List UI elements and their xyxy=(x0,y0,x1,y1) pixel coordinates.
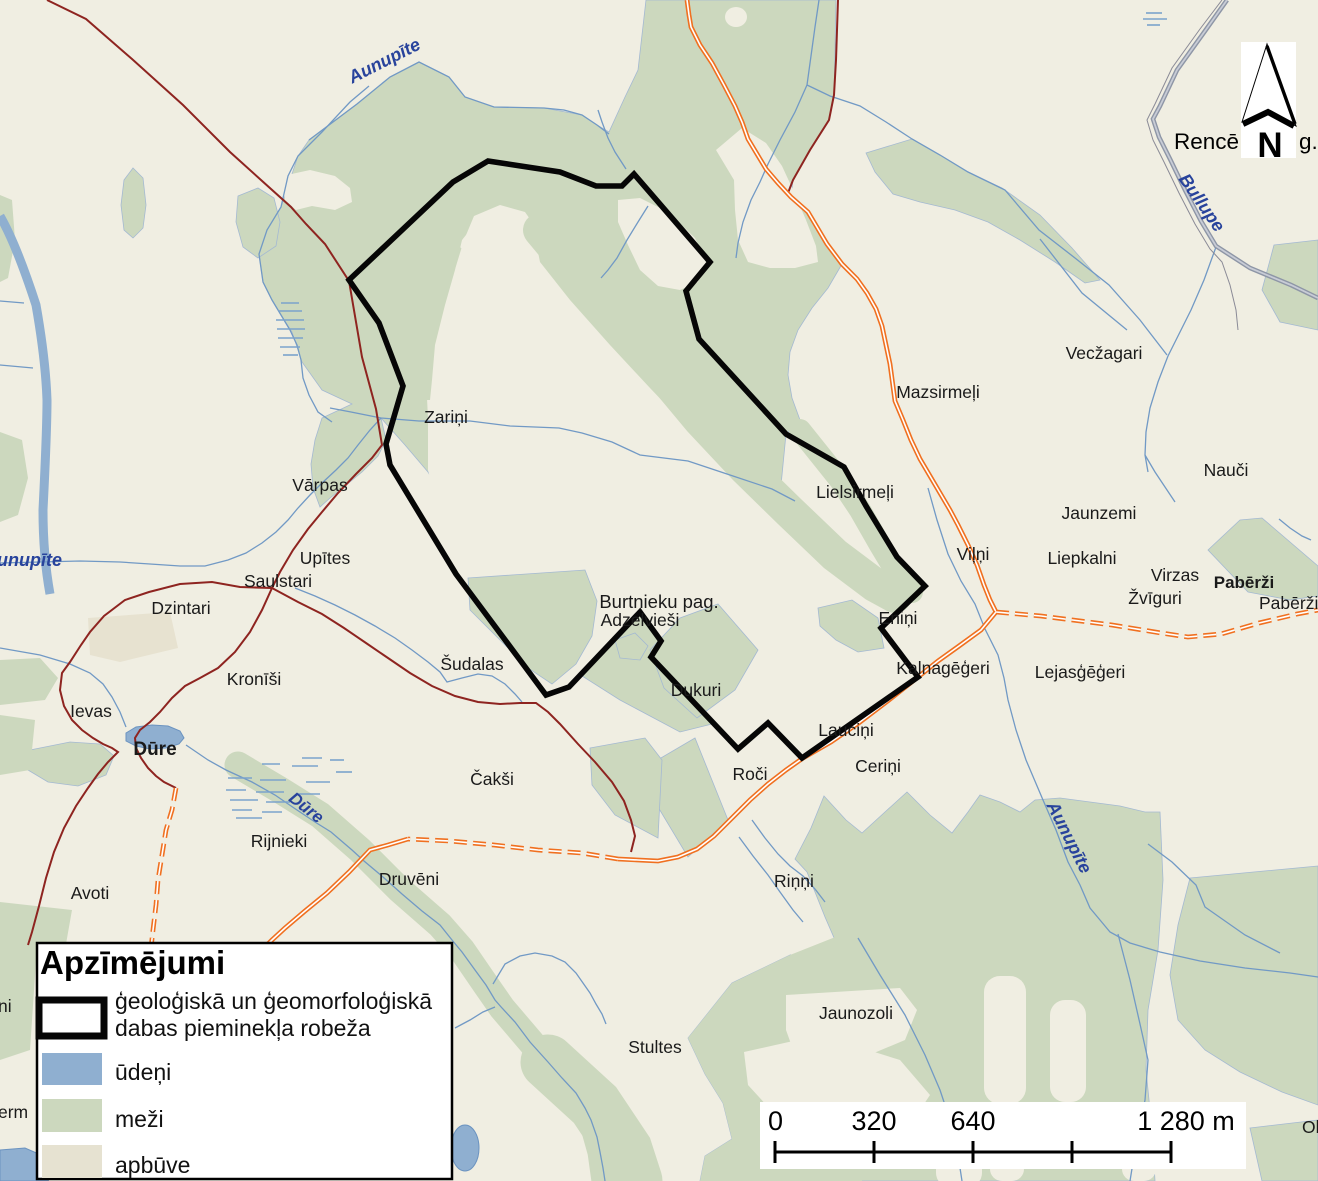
svg-text:Kronīši: Kronīši xyxy=(227,669,281,689)
svg-text:Zariņi: Zariņi xyxy=(424,407,468,427)
svg-text:g.: g. xyxy=(1299,129,1318,154)
svg-text:Apzīmējumi: Apzīmējumi xyxy=(40,944,225,981)
svg-text:Pabērži: Pabērži xyxy=(1259,593,1318,613)
svg-text:Lauciņi: Lauciņi xyxy=(818,720,873,740)
svg-text:Vecžagari: Vecžagari xyxy=(1066,343,1143,363)
svg-text:Rijnieki: Rijnieki xyxy=(251,831,307,851)
svg-text:Nauči: Nauči xyxy=(1204,460,1249,480)
svg-text:Rencē: Rencē xyxy=(1174,129,1239,154)
svg-text:Druvēni: Druvēni xyxy=(379,869,439,889)
svg-text:Burtnieku pag.: Burtnieku pag. xyxy=(599,591,718,612)
svg-text:Mazsirmeļi: Mazsirmeļi xyxy=(896,382,980,402)
svg-text:Virzas: Virzas xyxy=(1151,565,1200,585)
svg-text:N: N xyxy=(1257,126,1282,165)
svg-text:320: 320 xyxy=(851,1106,896,1136)
svg-text:Lielsirmeļi: Lielsirmeļi xyxy=(816,482,894,502)
svg-text:Ob: Ob xyxy=(1302,1117,1318,1137)
svg-text:erm: erm xyxy=(0,1102,28,1122)
svg-text:Eniņi: Eniņi xyxy=(879,608,918,628)
svg-text:1 280 m: 1 280 m xyxy=(1137,1106,1235,1136)
svg-text:Lejasģēģeri: Lejasģēģeri xyxy=(1035,662,1125,682)
svg-text:ūdeņi: ūdeņi xyxy=(115,1059,171,1085)
svg-text:Dzintari: Dzintari xyxy=(151,598,210,618)
svg-text:Viļņi: Viļņi xyxy=(957,544,990,564)
svg-text:Upītes: Upītes xyxy=(300,548,351,568)
svg-text:Čakši: Čakši xyxy=(470,768,514,789)
svg-text:Saulstari: Saulstari xyxy=(244,571,312,591)
svg-text:Riņņi: Riņņi xyxy=(774,871,814,891)
svg-text:ģeoloģiskā un ģeomorfoloģiskā: ģeoloģiskā un ģeomorfoloģiskā xyxy=(115,988,432,1014)
svg-text:Jaunozoli: Jaunozoli xyxy=(819,1003,893,1023)
svg-text:0: 0 xyxy=(768,1106,783,1136)
svg-text:Roči: Roči xyxy=(732,764,767,784)
svg-text:Adzelvieši: Adzelvieši xyxy=(601,610,680,630)
svg-text:unupīte: unupīte xyxy=(0,550,62,570)
svg-text:Stultes: Stultes xyxy=(628,1037,682,1057)
svg-text:Šudalas: Šudalas xyxy=(440,653,503,674)
svg-text:Kalnagēģeri: Kalnagēģeri xyxy=(896,658,989,678)
svg-text:Pabērži: Pabērži xyxy=(1214,573,1274,592)
svg-text:Ceriņi: Ceriņi xyxy=(855,756,901,776)
svg-text:Jaunzemi: Jaunzemi xyxy=(1062,503,1137,523)
svg-text:640: 640 xyxy=(950,1106,995,1136)
svg-text:Vārpas: Vārpas xyxy=(292,475,348,495)
svg-text:Avoti: Avoti xyxy=(71,883,110,903)
svg-text:Ievas: Ievas xyxy=(70,701,112,721)
svg-text:Dūre: Dūre xyxy=(133,739,176,760)
svg-text:ni: ni xyxy=(0,996,12,1016)
svg-text:apbūve: apbūve xyxy=(115,1152,190,1178)
svg-text:Dukuri: Dukuri xyxy=(671,680,722,700)
svg-text:meži: meži xyxy=(115,1106,164,1132)
svg-text:Žvīguri: Žvīguri xyxy=(1128,588,1181,608)
svg-text:dabas pieminekļa robeža: dabas pieminekļa robeža xyxy=(115,1015,371,1041)
svg-text:Liepkalni: Liepkalni xyxy=(1047,548,1116,568)
